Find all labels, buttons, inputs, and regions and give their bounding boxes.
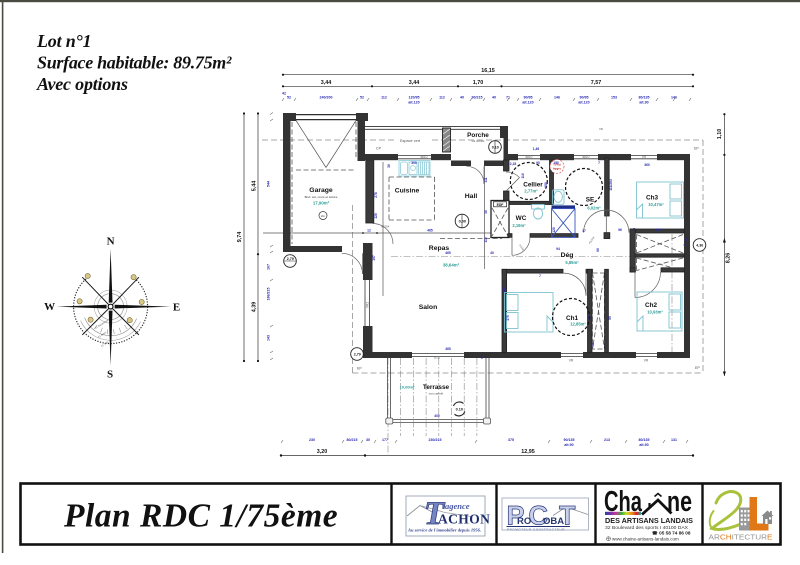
svg-text:A1/204: A1/204 — [588, 235, 596, 244]
svg-text:80/135: 80/135 — [639, 438, 650, 442]
svg-text:Ch3: Ch3 — [646, 195, 659, 202]
svg-text:E: E — [173, 302, 180, 314]
svg-text:7: 7 — [539, 274, 541, 278]
svg-text:PROMOTEUR CONSTRUCTEUR: PROMOTEUR CONSTRUCTEUR — [507, 527, 565, 531]
svg-text:A0/204: A0/204 — [381, 225, 390, 229]
svg-text:131: 131 — [671, 438, 677, 442]
svg-text:VTE: VTE — [434, 356, 440, 360]
svg-text:7: 7 — [633, 228, 635, 232]
svg-text:12,85m²: 12,85m² — [570, 322, 586, 327]
svg-text:Brut: sol, murs et toiture: Brut: sol, murs et toiture — [305, 195, 338, 199]
svg-text:T: T — [559, 501, 576, 531]
svg-text:375: 375 — [506, 315, 510, 321]
svg-text:10,47m²: 10,47m² — [648, 202, 664, 207]
svg-text:167: 167 — [372, 255, 376, 261]
svg-text:21 Décembre: 21 Décembre — [94, 318, 110, 330]
svg-text:2,77m²: 2,77m² — [524, 189, 538, 194]
svg-text:213: 213 — [604, 438, 610, 442]
svg-text:8,26: 8,26 — [726, 253, 732, 264]
svg-text:alt.120: alt.120 — [522, 101, 533, 105]
svg-text:2,79: 2,79 — [287, 257, 294, 261]
svg-text:Surface habitable: 89.75m²: Surface habitable: 89.75m² — [37, 53, 232, 73]
svg-text:sp10: sp10 — [421, 155, 428, 159]
svg-text:21 Mars: 21 Mars — [97, 330, 108, 339]
svg-text:10,00m²: 10,00m² — [400, 385, 416, 390]
svg-text:alt.90: alt.90 — [639, 443, 648, 447]
svg-text:EP: EP — [357, 367, 362, 371]
svg-text:465: 465 — [445, 251, 451, 255]
svg-text:90/215: 90/215 — [472, 96, 483, 100]
svg-text:120: 120 — [374, 213, 378, 219]
svg-text:360: 360 — [644, 163, 650, 167]
svg-text:Terrasse: Terrasse — [423, 384, 450, 391]
svg-text:240/200: 240/200 — [320, 96, 333, 100]
svg-text:21 Juin: 21 Juin — [100, 340, 110, 348]
svg-text:www.chaine-artisans-landais.co: www.chaine-artisans-landais.com — [612, 537, 679, 542]
svg-text:SE: SE — [586, 197, 595, 204]
svg-text:☎ 05 58 74 86 08: ☎ 05 58 74 86 08 — [652, 531, 691, 536]
svg-text:VR2: VR2 — [366, 302, 370, 308]
svg-text:3,44: 3,44 — [321, 80, 332, 86]
svg-text:112: 112 — [381, 96, 387, 100]
svg-text:7: 7 — [598, 161, 600, 165]
svg-text:110: 110 — [521, 173, 525, 178]
svg-text:VR: VR — [644, 359, 649, 363]
svg-text:Dég: Dég — [561, 252, 574, 259]
svg-text:90/135: 90/135 — [564, 438, 575, 442]
svg-text:0.10: 0.10 — [492, 146, 499, 150]
svg-text:N: N — [107, 236, 115, 248]
svg-text:3,20: 3,20 — [317, 449, 328, 455]
svg-text:EP: EP — [695, 366, 700, 370]
svg-text:465: 465 — [445, 347, 451, 351]
svg-text:30: 30 — [591, 343, 595, 347]
svg-text:40: 40 — [490, 251, 494, 255]
svg-text:90/95: 90/95 — [580, 96, 589, 100]
svg-text:230: 230 — [309, 438, 315, 442]
svg-text:alt.120: alt.120 — [408, 101, 419, 105]
svg-text:Cellier: Cellier — [523, 182, 543, 189]
svg-text:sp10: sp10 — [583, 155, 590, 159]
svg-text:30: 30 — [685, 238, 689, 242]
svg-text:1,10: 1,10 — [717, 129, 723, 140]
svg-text:2,19m²: 2,19m² — [512, 223, 526, 228]
svg-text:260: 260 — [655, 228, 661, 232]
svg-text:544: 544 — [267, 181, 271, 187]
svg-text:CP: CP — [376, 147, 382, 151]
svg-text:S: S — [107, 369, 113, 381]
svg-text:378: 378 — [587, 315, 591, 321]
svg-text:4,36: 4,36 — [696, 243, 703, 247]
svg-text:9: 9 — [683, 244, 687, 246]
svg-text:52: 52 — [287, 96, 291, 100]
svg-text:12,95: 12,95 — [521, 449, 535, 455]
svg-text:9,74: 9,74 — [237, 232, 243, 243]
svg-text:90: 90 — [536, 161, 540, 165]
svg-text:17,90m²: 17,90m² — [313, 201, 330, 206]
svg-text:146: 146 — [554, 96, 560, 100]
svg-text:WC: WC — [516, 215, 527, 222]
svg-text:96: 96 — [618, 228, 622, 232]
svg-text:7,57: 7,57 — [591, 80, 602, 86]
svg-text:40: 40 — [460, 96, 464, 100]
svg-text:52: 52 — [360, 96, 364, 100]
svg-text:111: 111 — [484, 177, 488, 182]
svg-text:Espace vert: Espace vert — [400, 139, 421, 143]
svg-text:EDF: EDF — [497, 203, 504, 207]
svg-text:60: 60 — [596, 248, 600, 252]
svg-text:Hall: Hall — [465, 193, 478, 200]
svg-text:300: 300 — [411, 161, 417, 165]
svg-text:94: 94 — [556, 247, 560, 251]
svg-text:110: 110 — [484, 237, 488, 242]
svg-text:55: 55 — [608, 316, 612, 320]
svg-text:Plan RDC 1/75ème: Plan RDC 1/75ème — [63, 498, 338, 535]
svg-text:VR: VR — [642, 155, 647, 159]
svg-text:10,93m²: 10,93m² — [647, 310, 663, 315]
svg-text:Salon: Salon — [419, 304, 438, 311]
svg-text:2: 2 — [481, 356, 483, 360]
svg-text:30: 30 — [366, 438, 370, 442]
svg-text:17: 17 — [582, 229, 586, 233]
svg-text:2m: 2m — [321, 214, 326, 218]
svg-text:2,79: 2,79 — [354, 352, 361, 356]
svg-text:16,15: 16,15 — [481, 68, 495, 74]
svg-text:6,02m²: 6,02m² — [587, 206, 601, 211]
svg-text:186/215: 186/215 — [267, 288, 271, 301]
svg-text:38,64m²: 38,64m² — [443, 263, 460, 268]
svg-text:0.00: 0.00 — [459, 220, 466, 224]
svg-text:465: 465 — [427, 229, 433, 233]
svg-text:0.10: 0.10 — [456, 408, 463, 412]
svg-text:Garage: Garage — [309, 187, 333, 194]
svg-text:hygro: hygro — [553, 166, 562, 170]
svg-text:4,39: 4,39 — [252, 302, 258, 313]
svg-text:80/135: 80/135 — [639, 96, 650, 100]
svg-text:150: 150 — [544, 182, 548, 188]
svg-text:alt.90: alt.90 — [564, 443, 573, 447]
svg-text:30: 30 — [484, 210, 488, 214]
svg-text:EP: EP — [694, 147, 699, 151]
svg-text:80/215: 80/215 — [347, 438, 358, 442]
svg-text:167: 167 — [267, 264, 271, 270]
svg-text:Cuisine: Cuisine — [395, 188, 420, 195]
svg-text:2,18: 2,18 — [510, 162, 517, 166]
svg-text:VR: VR — [569, 359, 574, 363]
svg-text:non carrelé: non carrelé — [429, 392, 444, 396]
svg-text:alt.90: alt.90 — [639, 101, 648, 105]
svg-text:30: 30 — [387, 164, 391, 168]
svg-text:Avec options: Avec options — [36, 74, 128, 94]
svg-text:sol carrelé: sol carrelé — [472, 139, 485, 143]
svg-text:120/95: 120/95 — [409, 96, 420, 100]
svg-text:120: 120 — [552, 227, 556, 233]
svg-text:150: 150 — [553, 161, 559, 165]
svg-text:5,85m²: 5,85m² — [565, 260, 579, 265]
svg-text:Lot n°1: Lot n°1 — [36, 31, 91, 51]
svg-text:1,46: 1,46 — [533, 147, 540, 151]
svg-text:agence: agence — [445, 501, 470, 511]
svg-text:278: 278 — [374, 192, 378, 198]
svg-text:VR: VR — [599, 127, 603, 131]
svg-text:5,44: 5,44 — [252, 181, 258, 192]
svg-text:alt.120: alt.120 — [578, 101, 589, 105]
svg-text:ACHON: ACHON — [438, 512, 490, 527]
svg-text:42: 42 — [282, 92, 286, 96]
svg-text:153: 153 — [611, 96, 617, 100]
svg-text:12: 12 — [367, 229, 371, 233]
svg-text:3,44: 3,44 — [409, 80, 420, 86]
svg-text:90/95: 90/95 — [524, 96, 533, 100]
svg-text:1,70: 1,70 — [473, 80, 484, 86]
svg-text:177: 177 — [382, 438, 388, 442]
svg-text:400: 400 — [434, 414, 440, 418]
svg-text:40: 40 — [492, 96, 496, 100]
svg-text:ARCHITECTURE: ARCHITECTURE — [709, 535, 773, 542]
svg-text:112: 112 — [439, 96, 445, 100]
svg-text:sp10: sp10 — [526, 155, 533, 159]
svg-text:Ch2: Ch2 — [645, 302, 658, 309]
svg-text:W: W — [44, 301, 55, 313]
svg-text:111/204: 111/204 — [609, 179, 613, 191]
svg-text:32 Boulevard des sports I 4010: 32 Boulevard des sports I 40100 DAX — [605, 525, 689, 530]
svg-text:143: 143 — [267, 335, 271, 341]
svg-text:Au service de l'immobilier dep: Au service de l'immobilier depuis 1956. — [407, 528, 481, 533]
svg-text:230/215: 230/215 — [429, 438, 442, 442]
svg-text:136: 136 — [502, 287, 506, 293]
svg-text:375: 375 — [508, 438, 514, 442]
